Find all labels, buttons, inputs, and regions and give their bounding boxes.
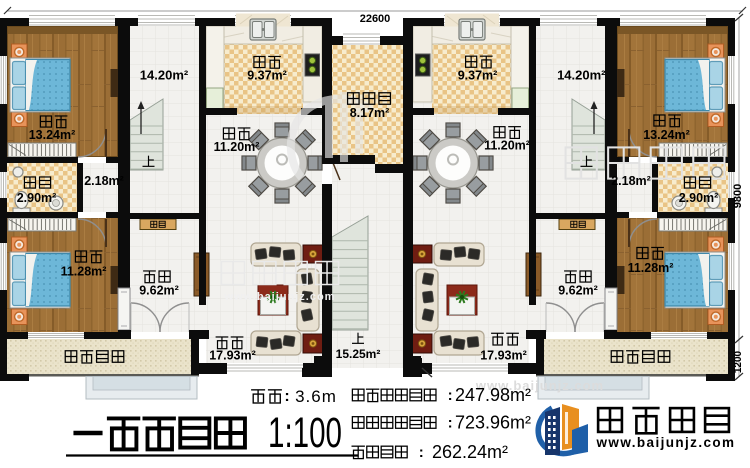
svg-text:1:100: 1:100 <box>268 409 342 457</box>
svg-text:11.28m²: 11.28m² <box>61 265 107 279</box>
svg-text:15.25m²: 15.25m² <box>336 347 381 361</box>
svg-text::: : <box>284 388 289 405</box>
svg-text:9.37m²: 9.37m² <box>247 69 287 83</box>
svg-text:9.62m²: 9.62m² <box>558 284 598 298</box>
svg-text:8.17m²: 8.17m² <box>350 106 390 120</box>
svg-text:11.20m²: 11.20m² <box>214 140 260 154</box>
svg-text:262.24m²: 262.24m² <box>432 442 508 462</box>
svg-text:9800: 9800 <box>732 184 744 208</box>
svg-text:9.62m²: 9.62m² <box>139 284 179 298</box>
svg-text:14.20m²: 14.20m² <box>140 68 189 83</box>
svg-text:11.28m²: 11.28m² <box>628 261 674 275</box>
svg-text:3.6m: 3.6m <box>295 387 337 406</box>
svg-text:2.18m²: 2.18m² <box>611 174 651 188</box>
svg-text:1200: 1200 <box>733 350 744 373</box>
svg-text:22600: 22600 <box>360 13 391 25</box>
svg-text:2.18m²: 2.18m² <box>84 174 124 188</box>
svg-text:2.90m²: 2.90m² <box>17 191 57 205</box>
svg-text::: : <box>448 415 453 432</box>
svg-text::: : <box>419 444 424 461</box>
svg-text:13.24m²: 13.24m² <box>643 128 690 142</box>
svg-text:17.93m²: 17.93m² <box>209 349 256 363</box>
svg-text:www.baijunjz.com: www.baijunjz.com <box>596 435 736 450</box>
svg-text:17.93m²: 17.93m² <box>480 349 527 363</box>
svg-text:11.20m²: 11.20m² <box>484 139 530 153</box>
svg-text:9.37m²: 9.37m² <box>458 69 498 83</box>
svg-text:723.96m²: 723.96m² <box>455 413 531 433</box>
svg-text:13.24m²: 13.24m² <box>29 128 76 142</box>
svg-text:www.baijunjz.com: www.baijunjz.com <box>224 291 336 303</box>
svg-text:2.90m²: 2.90m² <box>679 191 719 205</box>
svg-text:14.20m²: 14.20m² <box>557 68 606 83</box>
svg-text:247.98m²: 247.98m² <box>455 385 531 405</box>
svg-text::: : <box>448 387 453 404</box>
